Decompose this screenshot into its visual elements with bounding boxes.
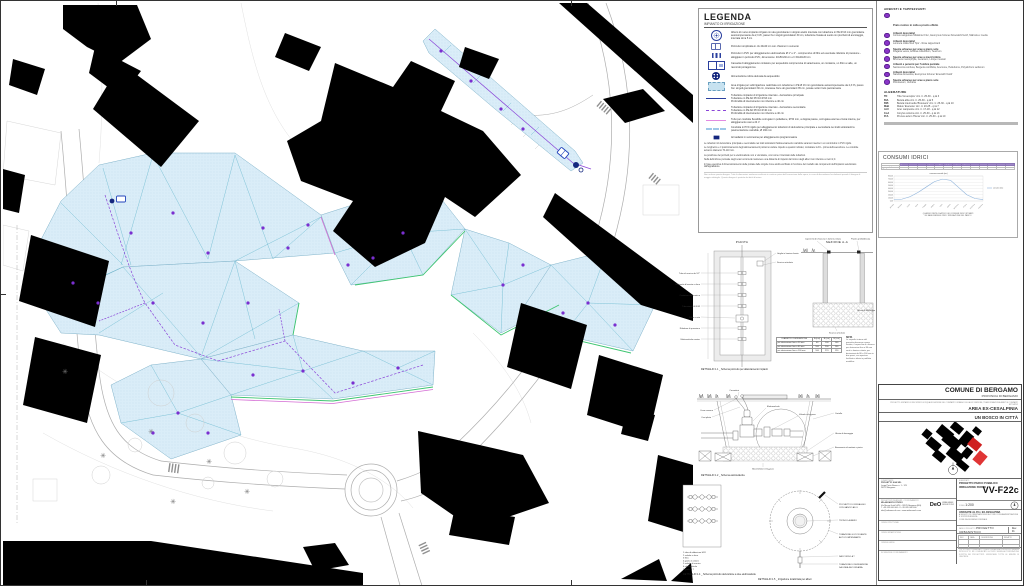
legend-note: Nella definizione puntuale degli scavi o… <box>704 159 867 162</box>
detail-title: SEZIONE A-A <box>826 240 848 244</box>
consumi-title: CONSUMI IDRICI <box>883 155 1015 161</box>
left-box: SICUREZZA E COORDINAMENTO <box>879 551 956 561</box>
svg-text:AUTOCOMPENSANTE: AUTOCOMPENSANTE <box>839 536 861 539</box>
detail-sezione-aa: SEZIONE A-A Coperchio di chiusura in lam… <box>801 238 876 335</box>
legend-notes: Le tubazioni di derivazione principale e… <box>704 143 867 169</box>
plant-bullet-icon <box>884 13 890 19</box>
legend-note: La posizione dei pozzetti per le elettro… <box>704 155 867 158</box>
provincia: PROVINCIA DI BERGAMO <box>882 394 1018 398</box>
presa-idrica-icon <box>712 72 720 80</box>
svg-text:Cavi pilota: Cavi pilota <box>701 416 712 419</box>
committente-box: COMMITTENTE PROGETTO SUA SRL Largo Porta… <box>879 479 956 499</box>
alberatura-item: PrAPrunus avium 'Plena' circ. tr. 25-30 … <box>884 115 1018 118</box>
svg-text:gennaio: gennaio <box>890 204 895 209</box>
derivazione-table: DIAMETRO DERIVAZIONEA (cm)B (cm)H (cm)pe… <box>776 337 842 353</box>
svg-text:consumo mensile (mc): consumo mensile (mc) <box>929 173 947 175</box>
plant-item: Prato rustico in zolla a pronto effetto <box>884 13 1018 31</box>
svg-text:0,00: 0,00 <box>890 201 893 203</box>
sprinkler-icon <box>711 30 722 41</box>
svg-text:CON GANCIO AD U: CON GANCIO AD U <box>839 506 858 509</box>
svg-text:✳: ✳ <box>206 458 212 466</box>
linea-corrugato-icon <box>706 120 726 121</box>
north-compass-icon <box>1010 501 1019 510</box>
legend-item: Cassetta di alloggiamento contatore per … <box>704 61 867 70</box>
svg-text:Tubazione DN 3/32: Tubazione DN 3/32 <box>682 306 701 308</box>
left-box: OPERE STRUTTURALI <box>879 521 956 531</box>
svg-text:800,00: 800,00 <box>888 176 893 178</box>
svg-text:Filtro a rete: Filtro a rete <box>689 316 700 319</box>
legend-subtitle: IMPIANTO DI IRRIGAZIONE <box>704 22 867 28</box>
svg-text:Basamento di mattoni o pietra: Basamento di mattoni o pietra <box>835 446 863 449</box>
svg-text:ottobre: ottobre <box>962 203 968 209</box>
svg-text:Rubinetto d'arresto a sfera: Rubinetto d'arresto a sfera <box>676 283 701 286</box>
comune-title: COMUNE DI BERGAMO <box>882 387 1018 394</box>
svg-text:Connettori: Connettori <box>729 389 739 392</box>
svg-text:aprile: aprile <box>914 203 919 208</box>
svg-text:RACCORDO A T: RACCORDO A T <box>839 555 855 558</box>
variante-box: VARIANTE AL P.I.I. EX-CESALPINA A SEGUIT… <box>957 510 1021 526</box>
cassetta-icon <box>708 61 725 70</box>
linea-principale-icon <box>706 98 726 99</box>
plant-bullet-icon <box>884 64 890 70</box>
legend-item: Condotta in PVC rigido per alloggiamento… <box>704 126 867 133</box>
detail-caption: DETTAGLIO 1.5 _ Irrigazione localizzata … <box>758 578 812 581</box>
svg-text:✳: ✳ <box>170 498 176 506</box>
title-block-footer: TUTTI I DIRITTI RISERVATI - QUESTO ELABO… <box>957 548 1021 559</box>
revision-table-box: REVDATA DESCRIZIONEREDATTO <box>957 534 1021 548</box>
svg-text:3 filtro: 3 filtro <box>683 557 690 560</box>
svg-text:✳: ✳ <box>244 488 250 496</box>
plant-item: Arbusti e perenni per l'ombra parzialeSa… <box>884 63 1018 69</box>
plant-item: Arbusti decorativiLonicera nitida 'Red T… <box>884 40 1018 46</box>
frame-tick <box>571 1 572 6</box>
consumi-caption: QUADRO RIEPILOGATIVO DEI CONSUMI IDRICI … <box>881 213 1015 218</box>
fase-row: FASE DI PROGETTO PROGETTO URBANISTICO Re… <box>957 526 1021 534</box>
svg-text:TUBAZIONE DI DERIVAZIONE: TUBAZIONE DI DERIVAZIONE <box>839 563 869 566</box>
svg-text:Valvola in by-pass: Valvola in by-pass <box>799 414 816 416</box>
linea-secondaria-icon <box>706 110 726 111</box>
svg-text:consumo (mc): consumo (mc) <box>993 188 1004 190</box>
legend-item: Tubazione impianto di irrigazione interr… <box>704 94 867 104</box>
svg-text:7 giunto a T: 7 giunto a T <box>683 568 695 571</box>
panel-divider <box>876 1 877 586</box>
centralina-icon <box>713 135 720 140</box>
plant-bullet-icon <box>884 33 890 39</box>
nota-block: NOTA Le superfici interne del pozzetto d… <box>846 337 875 363</box>
svg-text:100,00: 100,00 <box>888 197 893 199</box>
plant-bullet-icon <box>884 79 890 85</box>
plant-item: Specie erbacee per aree a mezz'ombraBrun… <box>884 56 1018 62</box>
frame-tick <box>146 580 147 585</box>
key-map-drawing <box>879 422 1021 477</box>
svg-text:Contatore volumetrico: Contatore volumetrico <box>680 294 701 297</box>
plant-bullet-icon <box>884 48 890 54</box>
svg-text:giugno: giugno <box>931 204 936 209</box>
svg-text:febbraio: febbraio <box>897 203 903 209</box>
drawing-sheet: ✳✳✳ ✳✳✳ <box>0 0 1024 586</box>
plant-item: Specie erbacee per aree a pieno solePenn… <box>884 79 1018 85</box>
legend-footnote: Non scalare questo disegno. Tutte le dim… <box>704 172 867 179</box>
legend-panel: LEGENDA IMPIANTO DI IRRIGAZIONE Albero d… <box>698 8 873 233</box>
project-title: UN BOSCO IN CITTÀ <box>882 415 1018 420</box>
scala-row: SCALA 1:200 <box>957 501 1021 510</box>
svg-text:4 giunto in ottone: 4 giunto in ottone <box>683 559 700 562</box>
comune-row: COMUNE DI BERGAMO PROVINCIA DI BERGAMO <box>879 385 1021 400</box>
svg-text:Scarico articolato: Scarico articolato <box>777 261 794 264</box>
legend-title: LEGENDA <box>704 12 867 22</box>
svg-text:dicembre: dicembre <box>977 203 984 210</box>
left-box: OPERE IMPIANTISTICHE <box>879 531 956 541</box>
water-consumption-panel: CONSUMI IDRICI gennaiofebbraiomarzoapril… <box>878 151 1018 238</box>
scale-value: 1:200 <box>965 503 974 507</box>
deo-logo: DeO URBAN GREENDESIGN STUDIO <box>930 502 954 508</box>
detail-1-5-irrigazione-alberi: PICCHETTO DI FISSAGGIO CON GANCIO AD U T… <box>758 490 869 581</box>
svg-text:Elettrovalvola: Elettrovalvola <box>767 405 780 408</box>
north-arrow-icon <box>952 467 954 470</box>
plant-item: Arbusti decorativiCornus sanguinea 'Midw… <box>884 32 1018 38</box>
legend-note: Le tubazioni di derivazione principale e… <box>704 143 867 146</box>
sheet-code: VV-F22c <box>983 485 1019 495</box>
pozzetto-pvc-icon <box>712 53 721 59</box>
legend-item: Pozzetto in PVC per alloggiamento elettr… <box>704 52 867 59</box>
frame-tick <box>1 294 6 295</box>
svg-text:Griglia in lamiera forata: Griglia in lamiera forata <box>777 252 799 255</box>
svg-text:maggio: maggio <box>922 204 927 209</box>
svg-text:DA LINEA SECONDARIA: DA LINEA SECONDARIA <box>839 566 863 569</box>
legend-item: Area irrigata per subirrigazione realizz… <box>704 82 867 91</box>
key-map <box>879 422 1021 479</box>
project-row: UN BOSCO IN CITTÀ <box>879 413 1021 422</box>
consumi-chart: consumo mensile (mc)0,00100,00200,00300,… <box>881 171 1015 211</box>
plant-bullet-icon <box>884 56 890 62</box>
legend-item: Albero di nuovo impianto irrigato con al… <box>704 30 867 41</box>
title-block: COMUNE DI BERGAMO PROVINCIA DI BERGAMO P… <box>878 384 1022 581</box>
detail-caption: DETTAGLIO 1.4 _ Schema pozzetto derivazi… <box>683 573 756 576</box>
svg-text:luglio: luglio <box>939 204 943 208</box>
svg-text:Elettrovalvola master: Elettrovalvola master <box>681 338 701 341</box>
legend-item: Armadietto in vetroresina per alloggiame… <box>704 135 867 140</box>
legend-note: Le lunghezze e il posizionamento degli a… <box>704 147 867 153</box>
site-plan-map: ✳✳✳ ✳✳✳ <box>3 3 693 585</box>
detail-title: PIANTA <box>736 240 748 244</box>
plant-legend-panel: ARBUSTI E TAPPEZZANTI Prato rustico in z… <box>884 7 1018 125</box>
legend-note: In fase esecutiva il dimensionamento del… <box>704 164 867 170</box>
detail-drawings: PIANTA <box>651 233 876 583</box>
svg-text:✳: ✳ <box>100 452 106 460</box>
left-box: OPERE A VERDE <box>879 541 956 551</box>
alberature-panel: ALBERATURE TDTilia 'Greenspire' circ. tr… <box>884 90 1018 118</box>
title-block-left-column: COMMITTENTE PROGETTO SUA SRL Largo Porta… <box>879 479 957 564</box>
title-block-right-column: ELABORATO PROGETTO PARCO PUBBLICO IRRIGA… <box>957 479 1021 564</box>
frame-tick <box>571 580 572 585</box>
svg-text:TRONCO ALBERO: TRONCO ALBERO <box>839 519 857 522</box>
progettisti-box: PROGETTISTI INCARICATI - COORDINAMENTO M… <box>879 499 956 521</box>
area-irrigata-icon <box>708 82 725 91</box>
consumi-table: gennaiofebbraiomarzoaprilemaggiogiugnolu… <box>881 163 1015 170</box>
plant-bullet-icon <box>884 40 890 46</box>
plants-header: ARBUSTI E TAPPEZZANTI <box>884 7 1018 11</box>
svg-text:500,00: 500,00 <box>888 185 893 187</box>
svg-text:Ghiaia di drenaggio: Ghiaia di drenaggio <box>857 309 876 312</box>
legend-item: Alimentazione idrica derivata da acquedo… <box>704 72 867 80</box>
svg-text:PICCHETTO DI FISSAGGIO: PICCHETTO DI FISSAGGIO <box>839 503 866 506</box>
svg-text:200,00: 200,00 <box>888 194 893 196</box>
linea-pvc-icon <box>706 128 726 130</box>
plant-item: Arbusti decorativiNandina domestica, Euo… <box>884 71 1018 77</box>
svg-text:Coperchio di chiusura in lamie: Coperchio di chiusura in lamiera striata <box>805 238 842 241</box>
svg-text:TUBAZIONE GOCCIOLANTE: TUBAZIONE GOCCIOLANTE <box>839 533 867 536</box>
svg-text:agosto: agosto <box>946 203 951 208</box>
svg-text:2 valvola a sfera: 2 valvola a sfera <box>683 554 699 557</box>
svg-text:Tubo di scarico da 1/2": Tubo di scarico da 1/2" <box>679 272 700 275</box>
svg-text:novembre: novembre <box>969 203 976 210</box>
divider-bar <box>884 122 1018 125</box>
legend-item: Tubazione impianto di irrigazione interr… <box>704 106 867 116</box>
svg-text:600,00: 600,00 <box>888 182 893 184</box>
svg-text:1 tubo di adduzione H2O: 1 tubo di adduzione H2O <box>683 551 706 554</box>
revision-badge: Rev. 01 <box>1008 527 1019 533</box>
svg-text:400,00: 400,00 <box>888 188 893 190</box>
alberature-header: ALBERATURE <box>884 90 1018 94</box>
svg-text:Scarico articolato: Scarico articolato <box>829 332 846 335</box>
area-title: AREA EX-CESALPINIA <box>882 406 1018 411</box>
detail-caption: DETTAGLIO 1.1 _ Schema pozzetto per alla… <box>701 368 768 371</box>
detail-caption: DETTAGLIO 1.2 _ Schema elettrovalvola <box>701 474 745 477</box>
plant-item: Specie erbacee per aree a pieno soleFrag… <box>884 48 1018 54</box>
svg-text:700,00: 700,00 <box>888 179 893 181</box>
svg-text:Riduttore di pressione: Riduttore di pressione <box>680 327 701 330</box>
pozzetto-icon <box>711 43 721 50</box>
legend-item: Tubo per condotte flessibile corrugato i… <box>704 118 867 125</box>
detail-1-2-elettrovalvola: Connettori Elettrovalvola Valvola in by-… <box>697 389 863 477</box>
svg-text:✳: ✳ <box>62 368 68 376</box>
revision-table: REVDATA DESCRIZIONEREDATTO <box>958 535 1020 549</box>
elaborato-box: ELABORATO PROGETTO PARCO PUBBLICO IRRIGA… <box>957 479 1021 501</box>
area-row: PROGETTO UNITARIO DI RECUPERO E RIQUALIF… <box>879 400 1021 413</box>
svg-text:5 valvola di scarico: 5 valvola di scarico <box>683 562 701 565</box>
legend-item: Pozzetto rompitratta in cls 40x40 cm con… <box>704 43 867 50</box>
title-block-grid: COMMITTENTE PROGETTO SUA SRL Largo Porta… <box>879 479 1021 564</box>
svg-text:marzo: marzo <box>906 203 911 208</box>
frame-tick <box>116 1 117 6</box>
svg-text:Cartello: Cartello <box>835 412 843 415</box>
svg-text:Bocchettone in by-pass: Bocchettone in by-pass <box>752 468 774 471</box>
svg-text:settembre: settembre <box>953 203 960 210</box>
detail-1-4-pozzetto-derivazione: 1 tubo di adduzione H2O 2 valvola a sfer… <box>683 485 756 576</box>
svg-text:6 elettrovalvola: 6 elettrovalvola <box>683 565 698 568</box>
svg-text:Piastra prefabbricata: Piastra prefabbricata <box>851 238 871 241</box>
svg-text:300,00: 300,00 <box>888 191 893 193</box>
plant-bullet-icon <box>884 72 890 78</box>
svg-text:Cavo comune: Cavo comune <box>700 410 714 412</box>
svg-text:Ghiaia di drenaggio: Ghiaia di drenaggio <box>835 432 854 435</box>
